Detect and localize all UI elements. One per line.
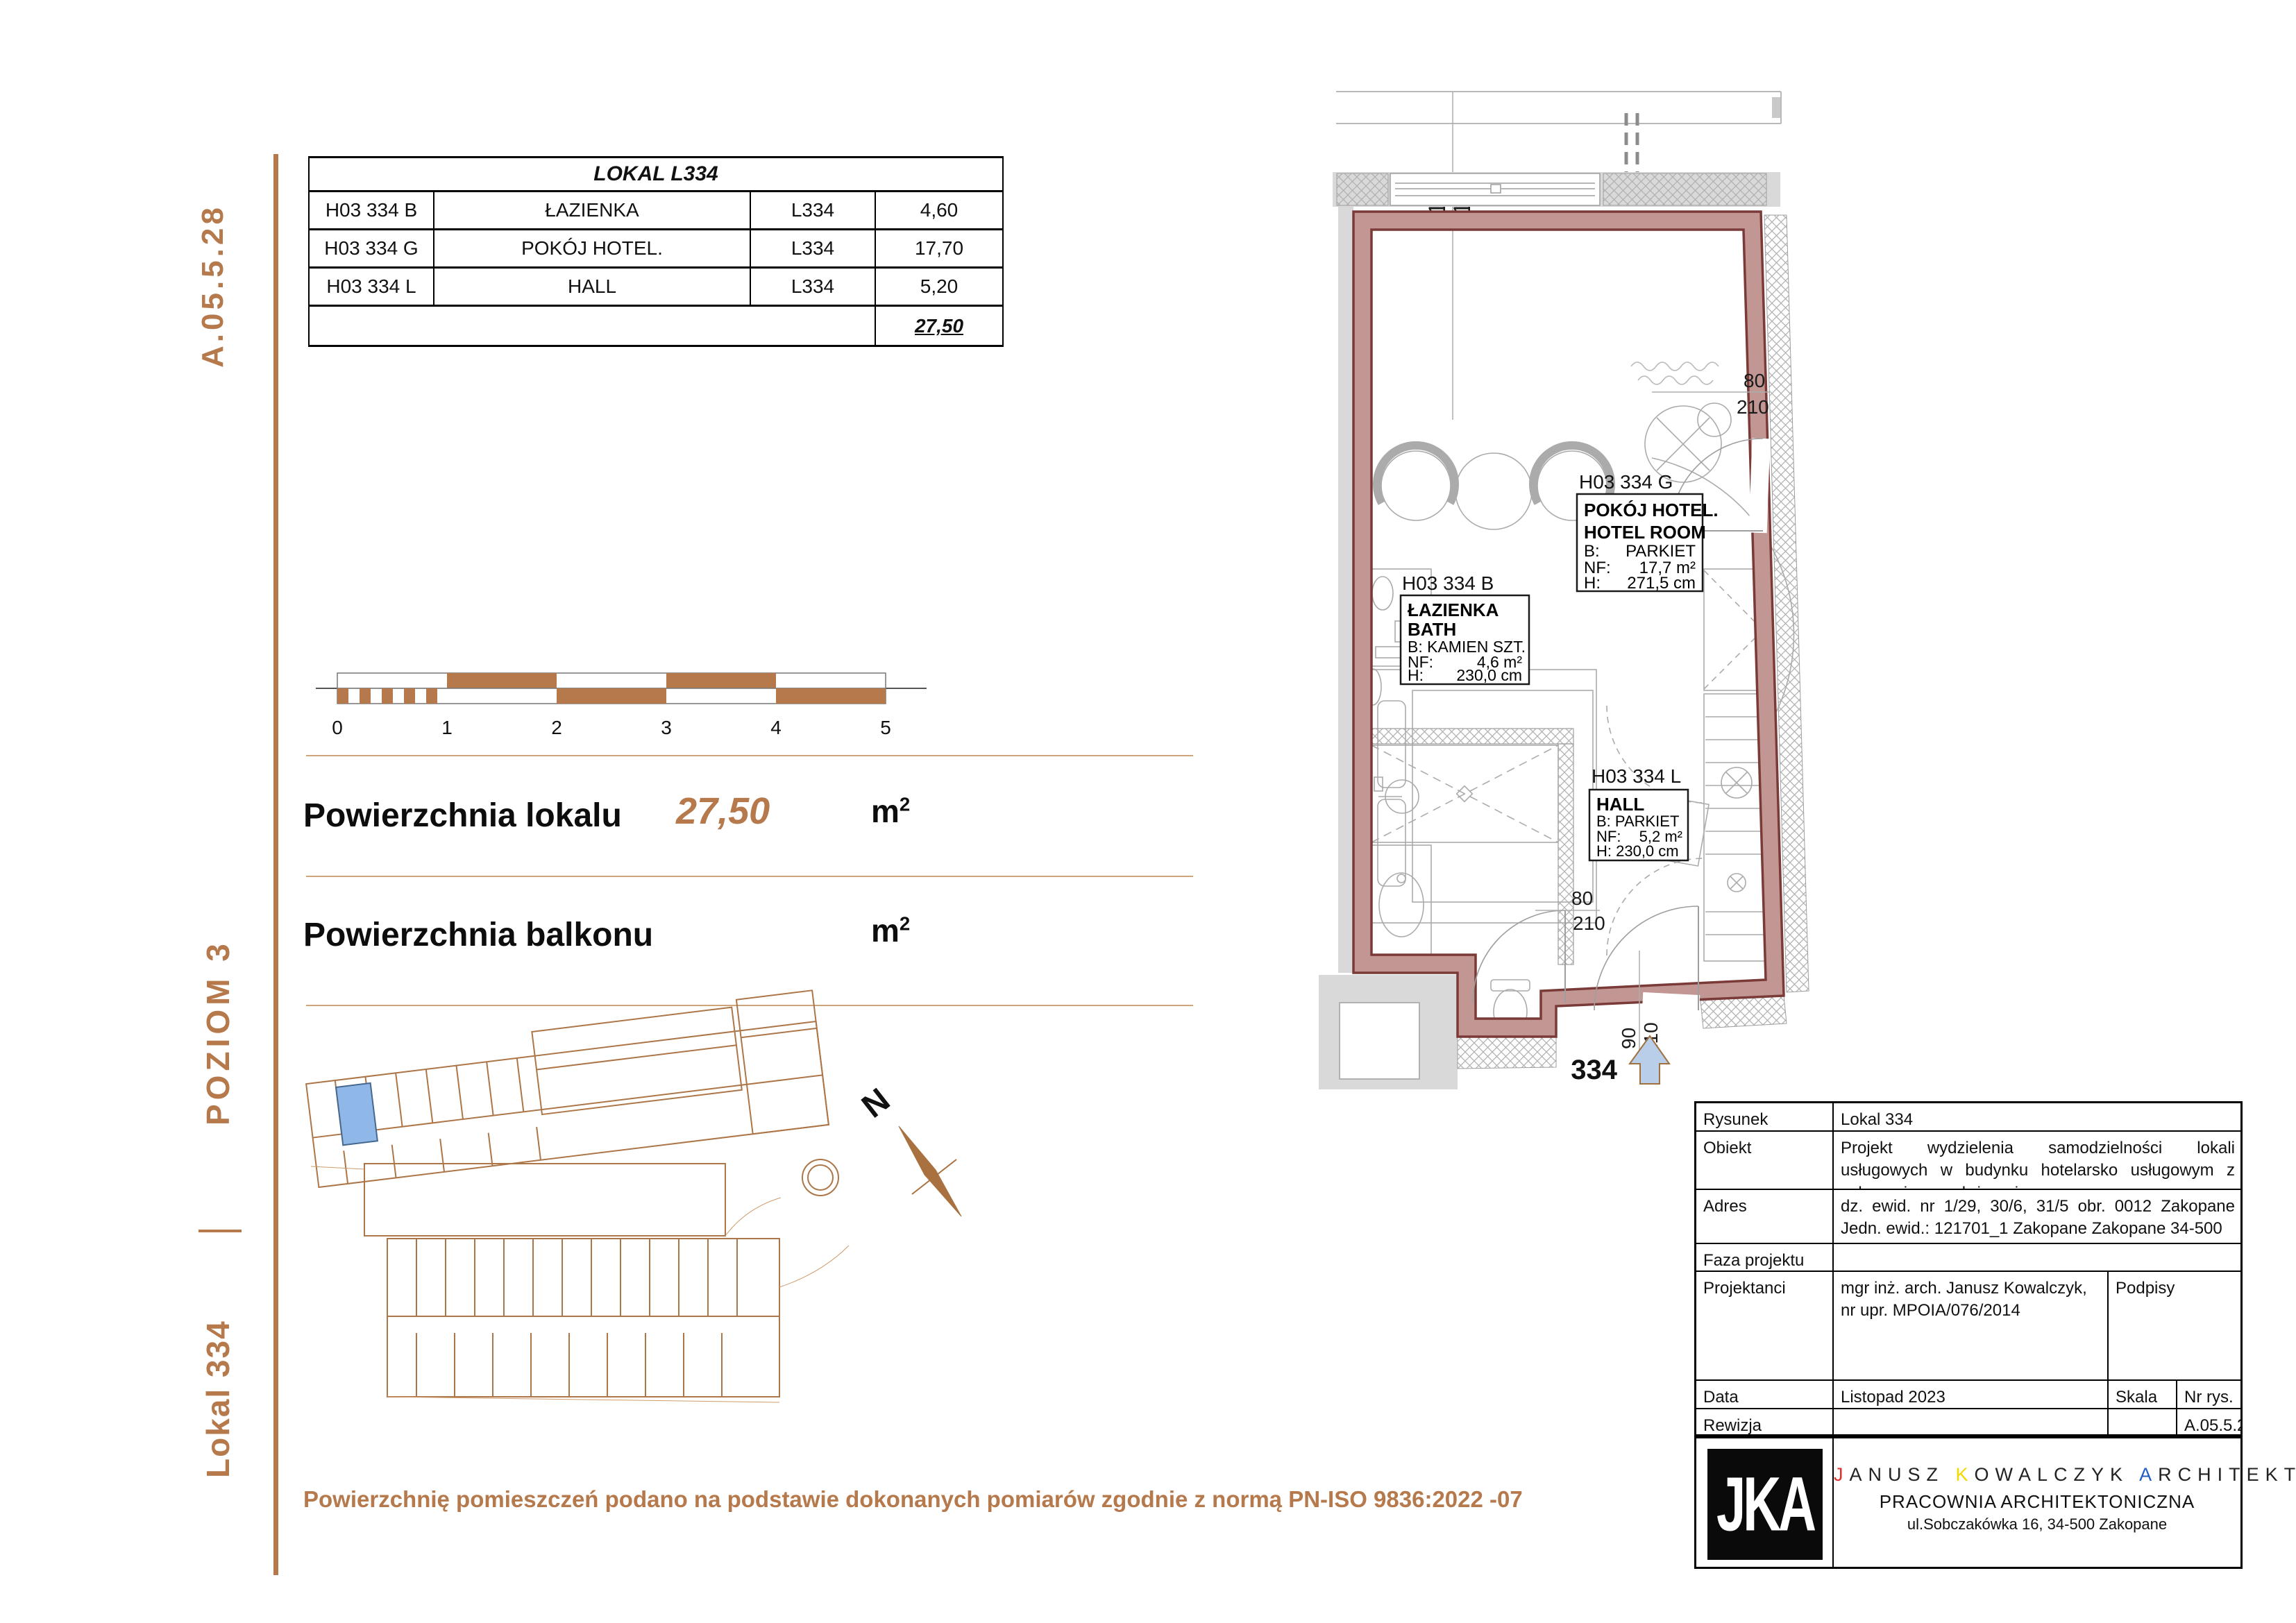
divider [306,755,1193,756]
room-name-en: BATH [1408,619,1456,640]
left-rail-dash [199,1230,242,1232]
desk-lamp [1372,577,1393,610]
jka-logo: JKA [1707,1449,1823,1560]
room-name: ŁAZIENKA [434,192,750,230]
unit-plan: 182 157 [1312,42,1825,1103]
entry-w: 90 [1618,1028,1639,1049]
curtain-squiggle [1631,362,1719,371]
hotel-room-caption: H03 334 G [1579,471,1673,493]
room-name-pl: ŁAZIENKA [1408,600,1499,620]
room-area: 4,60 [875,192,1003,230]
round-table [1455,453,1532,529]
tb-adres: dz. ewid. nr 1/29, 30/6, 31/5 obr. 0012 … [1834,1190,2240,1244]
curtain-squiggle [1638,376,1713,384]
tb-label: Adres [1696,1190,1834,1244]
firm-studio: PRACOWNIA ARCHITEKTONICZNA [1834,1491,2240,1513]
floor-label: B: [1584,542,1600,561]
tb-label: Faza projektu [1696,1244,1834,1272]
firm-address: ul.Sobczakówka 16, 34-500 Zakopane [1834,1515,2240,1533]
unit-sup: 2 [900,794,910,815]
divider [306,876,1193,877]
tb-label: Projektanci [1696,1272,1834,1381]
room-code: H03 334 G [309,230,434,268]
bath-caption: H03 334 B [1402,572,1494,594]
shaft [1340,1003,1419,1079]
area-balkon-label: Powierzchnia balkonu [303,916,653,954]
tb-label: Rewizja [1696,1409,1834,1436]
site-detail-lines [311,1166,849,1402]
tick-5: 5 [880,717,891,738]
firm-name-part: ANUSZ [1850,1464,1956,1485]
scale-bar: 0 1 2 3 4 5 [298,652,937,749]
sheet-code-vertical: A.05.5.28 [196,204,230,368]
h-label: H: [1584,574,1601,593]
balcony-door-gap [1749,438,1771,533]
left-rail-line [273,154,278,1575]
h-value: H: 230,0 cm [1596,842,1679,860]
floor-value: PARKIET [1626,542,1696,561]
footnote: Powierzchnię pomieszczeń podano na podst… [303,1486,1523,1513]
room-unit: L334 [750,192,875,230]
level-label-vertical: POZIOM 3 [199,940,237,1125]
unit-label-vertical: Lokal 334 [199,1320,237,1478]
entry-number: 334 [1571,1055,1617,1085]
area-balkon-unit: m2 [871,912,910,949]
room-unit: L334 [750,230,875,268]
tb-nr-label: Nr rys. [2177,1381,2240,1409]
insulation-top-left [1337,173,1388,205]
tick-3: 3 [661,717,672,738]
entry-door-gap [1641,992,1700,1027]
tb-rysunek: Lokal 334 [1834,1103,2240,1132]
table-total-row: 27,50 [309,306,1003,346]
firm-initial-k: K [1956,1464,1975,1485]
room-name: POKÓJ HOTEL. [434,230,750,268]
facade-strip-left [1338,172,1353,973]
firm-initial-a: A [2139,1464,2158,1485]
tick-0: 0 [332,717,343,738]
armchair [1381,451,1451,520]
title-block: Rysunek Lokal 334 Obiekt Projekt wydziel… [1694,1101,2243,1569]
hall-caption: H03 334 L [1592,765,1681,787]
insulation-top-right [1603,173,1766,205]
door-right-h: 210 [1737,396,1769,418]
room-code: H03 334 L [309,268,434,306]
h-label: H: [1408,666,1424,684]
unit-sup: 2 [900,913,910,935]
area-lokal-label: Powierzchnia lokalu [303,797,622,835]
north-letter: N [855,1082,897,1125]
door-right-w: 80 [1744,370,1765,391]
tb-skala: Skala [2109,1381,2177,1409]
table-row: H03 334 G POKÓJ HOTEL. L334 17,70 [309,230,1003,268]
tb-obiekt: Projekt wydzielenia samodzielności lokal… [1834,1132,2240,1190]
room-area: 5,20 [875,268,1003,306]
firm-info: JANUSZ KOWALCZYK ARCHITEKT PRACOWNIA ARC… [1834,1464,2240,1533]
building-lower-wing [387,1239,779,1397]
room-name: HALL [434,268,750,306]
tb-label: Obiekt [1696,1132,1834,1190]
area-lokal-value: 27,50 [676,790,770,833]
tick-4: 4 [770,717,782,738]
bath-door-swing [1473,910,1565,1003]
window [1390,173,1600,205]
scale-bar-ticks: 0 1 2 3 4 5 [332,717,891,738]
tb-label: Data [1696,1381,1834,1409]
table-row: H03 334 L HALL L334 5,20 [309,268,1003,306]
balcony-lines [1336,92,1781,124]
lamp [1698,403,1731,436]
tb-faza [1834,1244,2240,1272]
firm-name-part: OWALCZYK [1975,1464,2140,1485]
room-unit: L334 [750,268,875,306]
table-row: H03 334 B ŁAZIENKA L334 4,60 [309,192,1003,230]
building-upper-wing [303,990,838,1397]
h-value: 271,5 cm [1627,574,1696,593]
total-area: 27,50 [875,306,1003,346]
tick-1: 1 [441,717,453,738]
tb-podpisy: Podpisy [2109,1272,2240,1381]
tap [1397,874,1406,883]
site-plan: N [298,961,1006,1419]
scale-bar-graphic [316,673,927,704]
wardrobe [1704,694,1766,961]
firm-name: JANUSZ KOWALCZYK ARCHITEKT [1834,1464,2240,1486]
jka-logo-text: JKA [1716,1461,1814,1548]
tb-skala-value [2109,1409,2177,1436]
room-name-pl: HALL [1596,794,1644,815]
tb-label: Rysunek [1696,1103,1834,1132]
firm-initial-j: J [1834,1464,1850,1485]
drawing-sheet: A.05.5.28 POZIOM 3 Lokal 334 LOKAL L334 … [0,0,2296,1623]
partition-bath-bedroom [1371,729,1573,744]
tb-rewizja [1834,1409,2109,1436]
north-arrow: N [855,1082,961,1216]
wardrobe-door-swing [1607,706,1704,803]
area-lokal-unit: m2 [871,792,910,830]
tb-projektanci: mgr inż. arch. Janusz Kowalczyk, nr upr.… [1834,1272,2109,1381]
tb-nr-value: A.05.5.28 [2177,1409,2240,1436]
firm-name-part: RCHITEKT [2158,1464,2296,1485]
room-area: 17,70 [875,230,1003,268]
door-hall-w: 80 [1571,887,1593,909]
door-hall-h: 210 [1573,912,1605,934]
vanity [1371,845,1431,965]
tb-data: Listopad 2023 [1834,1381,2109,1409]
unit-m: m [871,793,900,829]
column-marker [1772,97,1780,118]
unit-334-highlight [336,1083,378,1145]
tick-2: 2 [551,717,562,738]
room-name-en: HOTEL ROOM [1584,522,1706,543]
unit-m: m [871,912,900,949]
area-table-title: LOKAL L334 [309,158,1003,192]
room-code: H03 334 B [309,192,434,230]
area-table: LOKAL L334 H03 334 B ŁAZIENKA L334 4,60 … [308,156,1004,347]
compass-needle [899,1126,961,1216]
insulation-bottom-right [1700,996,1787,1028]
h-value: 230,0 cm [1456,666,1522,684]
armchair-back [1377,445,1455,503]
room-name-pl: POKÓJ HOTEL. [1584,500,1719,520]
